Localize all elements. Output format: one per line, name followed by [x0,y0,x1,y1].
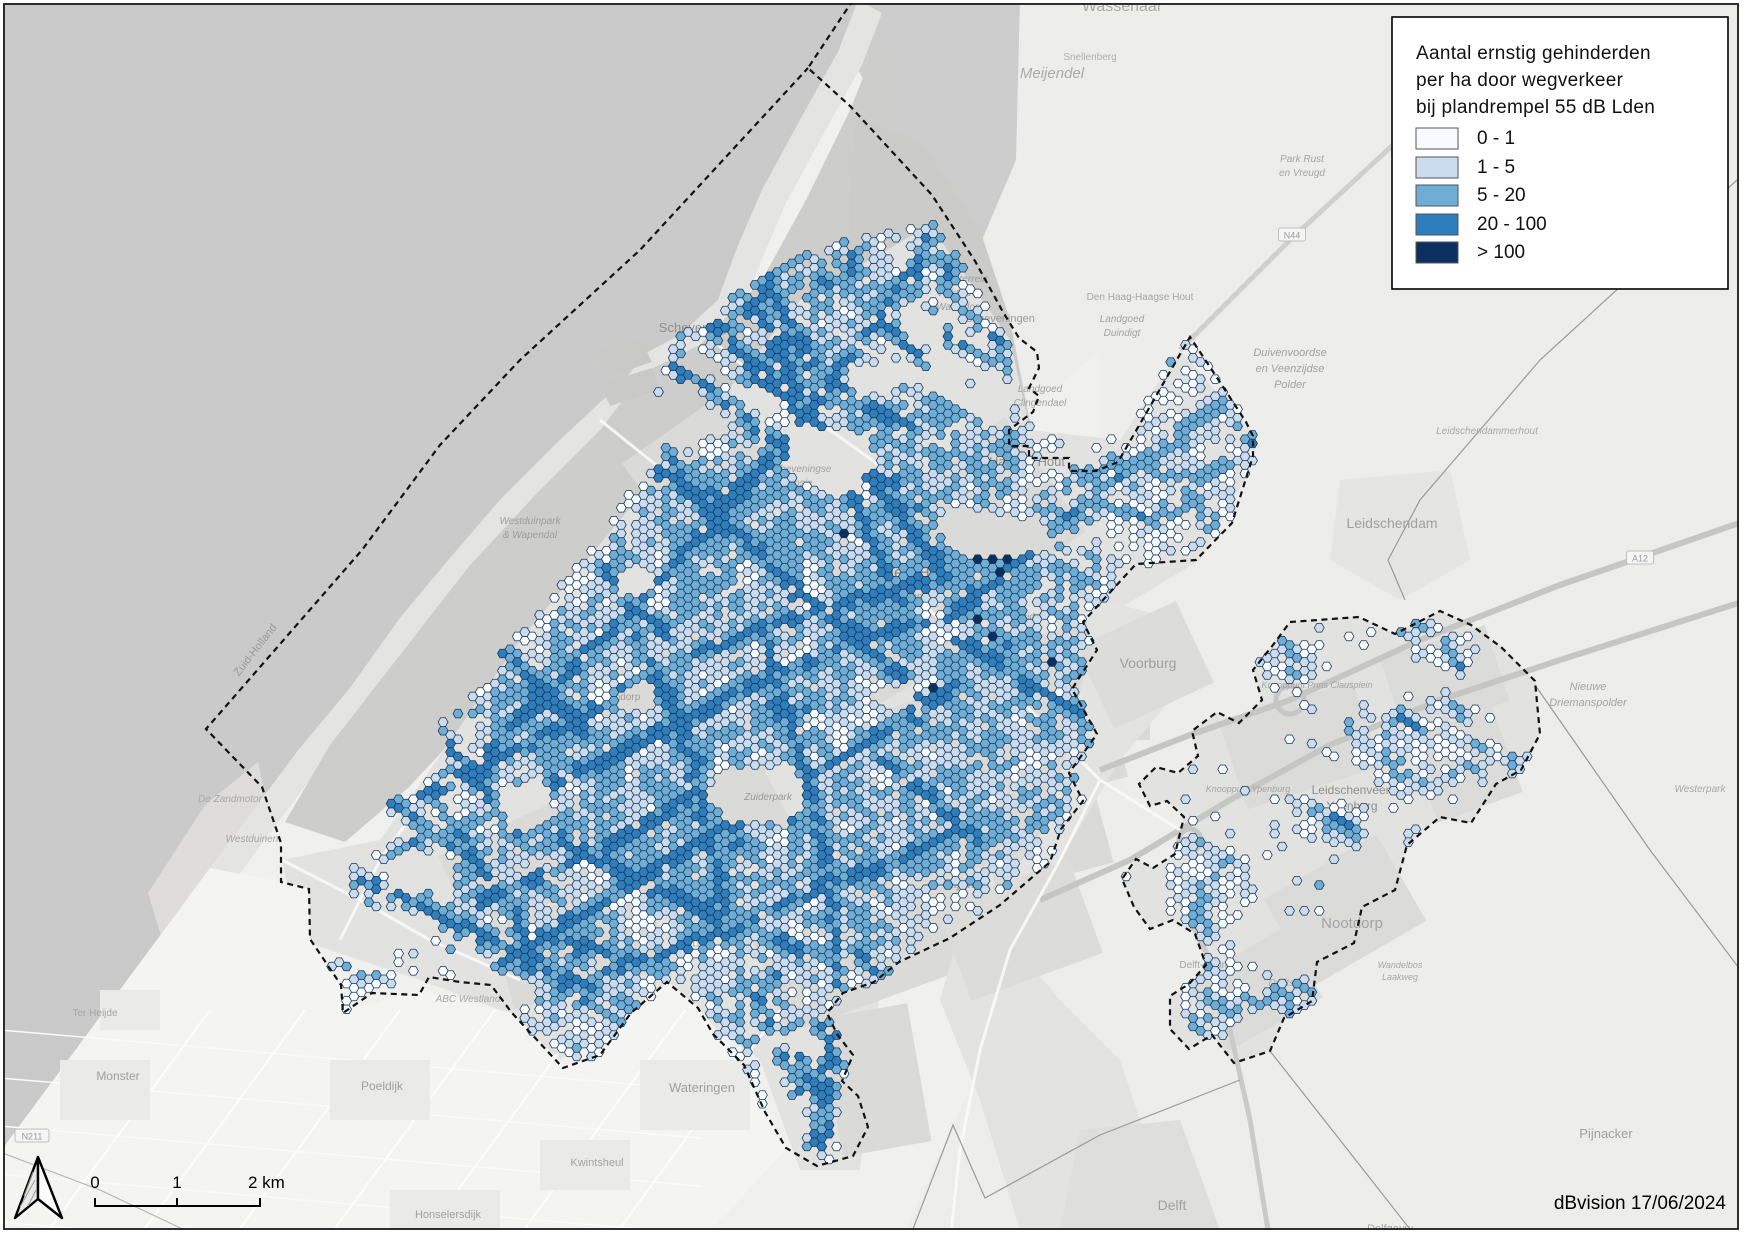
svg-text:Duindigt: Duindigt [1104,328,1142,339]
svg-text:Polder: Polder [1274,379,1307,391]
svg-text:Duivenvoordse: Duivenvoordse [1253,347,1326,359]
svg-text:Aantal ernstig gehinderden: Aantal ernstig gehinderden [1416,43,1651,64]
svg-text:Landgoed: Landgoed [1018,384,1063,395]
svg-text:Snellenberg: Snellenberg [1063,52,1116,63]
svg-text:A12: A12 [1632,554,1648,564]
svg-text:Laakweg: Laakweg [1382,972,1418,982]
svg-text:ABC Westland: ABC Westland [435,994,501,1005]
svg-text:Westduinen: Westduinen [226,834,279,845]
svg-text:Kwintsheul: Kwintsheul [570,1157,623,1169]
svg-text:Monster: Monster [96,1069,139,1083]
svg-text:Landgoed: Landgoed [1100,314,1145,325]
svg-text:N211: N211 [22,1132,43,1142]
svg-text:Nieuwe: Nieuwe [1570,681,1607,693]
svg-text:Honselersdijk: Honselersdijk [415,1209,482,1221]
svg-text:en Vreugd: en Vreugd [1279,168,1325,179]
svg-text:Poeldijk: Poeldijk [361,1079,404,1093]
svg-text:> 100: > 100 [1477,242,1525,263]
svg-text:Wandelbos: Wandelbos [1378,960,1423,970]
svg-text:De Zandmotor: De Zandmotor [198,794,263,805]
svg-text:en Veenzijdse: en Veenzijdse [1256,363,1325,375]
svg-text:0: 0 [90,1173,99,1192]
svg-text:N44: N44 [1284,231,1301,241]
svg-text:Park Rust: Park Rust [1280,154,1325,165]
svg-text:1: 1 [172,1173,181,1192]
svg-text:Meijendel: Meijendel [1020,65,1085,82]
svg-text:Nootdorp: Nootdorp [1321,915,1383,932]
svg-text:Voorburg: Voorburg [1120,655,1177,671]
svg-text:Westduinpark: Westduinpark [500,516,562,527]
svg-text:Wateringen: Wateringen [669,1080,735,1095]
svg-text:per ha door wegverkeer: per ha door wegverkeer [1416,70,1624,91]
svg-text:Delft: Delft [1158,1197,1187,1213]
svg-text:20 - 100: 20 - 100 [1477,214,1547,235]
svg-text:& Wapendal: & Wapendal [503,530,558,541]
svg-text:Driemanspolder: Driemanspolder [1549,697,1628,709]
svg-text:2 km: 2 km [248,1173,285,1192]
svg-text:dBvision 17/06/2024: dBvision 17/06/2024 [1554,1193,1727,1214]
svg-text:Den Haag-Haagse Hout: Den Haag-Haagse Hout [1087,292,1194,303]
svg-text:Ter Heijde: Ter Heijde [72,1008,117,1019]
svg-text:Zuiderpark: Zuiderpark [743,792,793,803]
svg-text:Clingendael: Clingendael [1014,398,1068,409]
svg-text:Leidschendammerhout: Leidschendammerhout [1436,426,1539,437]
svg-text:0 - 1: 0 - 1 [1477,128,1515,149]
svg-text:Pijnacker: Pijnacker [1579,1126,1633,1141]
svg-text:1 - 5: 1 - 5 [1477,157,1515,178]
svg-text:Westerpark: Westerpark [1675,784,1727,795]
svg-text:bij plandrempel 55 dB Lden: bij plandrempel 55 dB Lden [1416,97,1655,118]
svg-text:5 - 20: 5 - 20 [1477,185,1526,206]
svg-text:Leidschendam: Leidschendam [1346,515,1437,531]
